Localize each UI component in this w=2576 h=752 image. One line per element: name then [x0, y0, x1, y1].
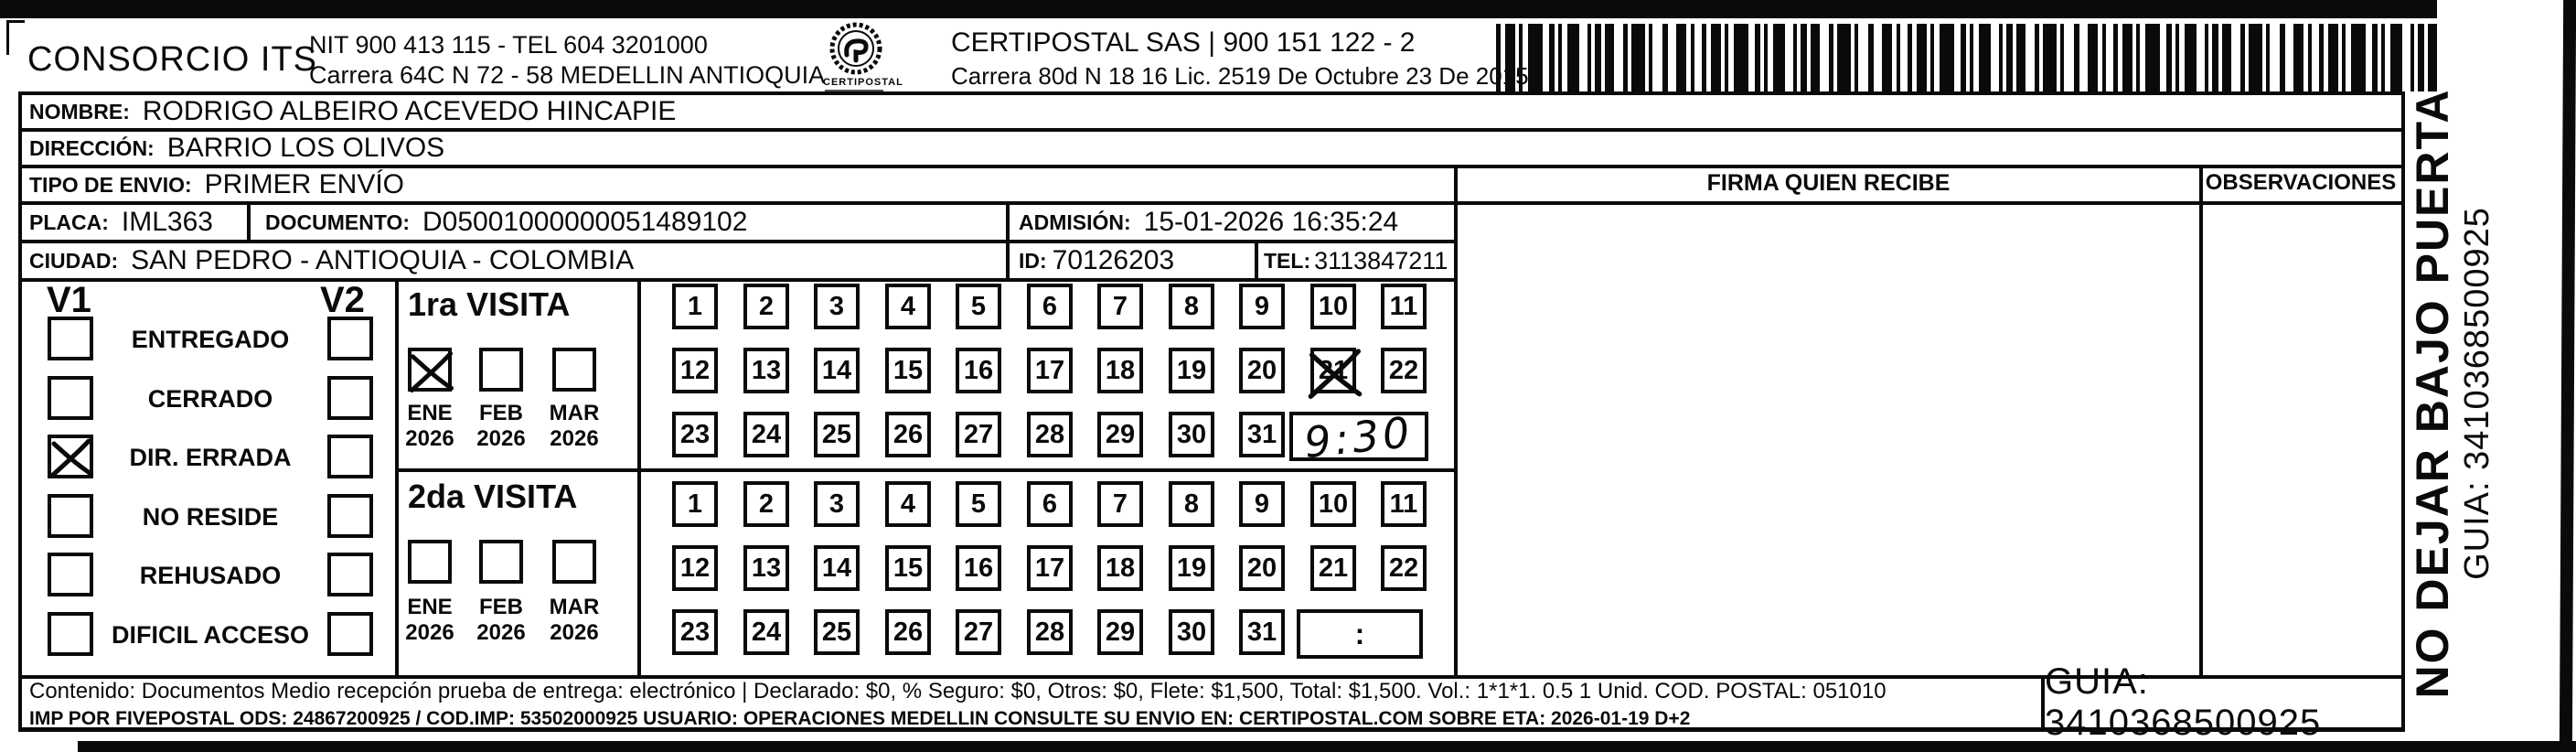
first-visit-title: 1ra VISITA [408, 285, 570, 324]
day-box: 26 [885, 609, 931, 655]
month-year-label: 2026 [463, 620, 540, 646]
firma-header: FIRMA QUIEN RECIBE [1458, 167, 2199, 199]
admision-value: 15-01-2026 16:35:24 [1144, 207, 1399, 238]
side-note-warning: NO DEJAR BAJO PUERTA [2408, 89, 2457, 699]
day-box: 7 [1097, 284, 1143, 329]
day-box: 21 [1310, 348, 1356, 393]
month-label: MAR [536, 595, 613, 620]
day-box: 25 [814, 412, 860, 457]
day-box: 30 [1169, 609, 1214, 655]
placa-label: PLACA: [29, 210, 109, 235]
month-checkbox [552, 348, 596, 392]
firma-signature-area [1458, 205, 2199, 675]
day-box: 4 [885, 284, 931, 329]
month-checkbox [408, 540, 452, 584]
day-box: 12 [672, 348, 718, 393]
scan-top-bar [0, 0, 2437, 18]
nombre-value: RODRIGO ALBEIRO ACEVEDO HINCAPIE [143, 96, 676, 127]
day-box: 23 [672, 609, 718, 655]
second-visit-time-value: : [1355, 618, 1365, 651]
day-box: 3 [814, 284, 860, 329]
visits-panel: 1ra VISITA 2da VISITA ENE2026FEB2026MAR2… [395, 278, 637, 675]
day-box: 5 [956, 481, 1001, 527]
day-box: 28 [1027, 412, 1073, 457]
day-box: 27 [956, 412, 1001, 457]
second-visit-time-box: : [1297, 609, 1423, 659]
documento-label: DOCUMENTO: [265, 210, 410, 235]
day-box: 22 [1381, 348, 1427, 393]
day-box: 20 [1239, 545, 1285, 591]
tel-label: TEL: [1264, 249, 1310, 274]
day-box: 24 [743, 609, 789, 655]
day-box: 5 [956, 284, 1001, 329]
day-box: 19 [1169, 545, 1214, 591]
status-option-label: NO RESIDE [18, 503, 402, 532]
day-box: 11 [1381, 481, 1427, 527]
month-checkbox [479, 540, 523, 584]
footer-imp-line: IMP POR FIVEPOSTAL ODS: 24867200925 / CO… [29, 708, 1887, 730]
month-label: FEB [463, 595, 540, 620]
scan-right-edge [2560, 0, 2576, 752]
day-box: 28 [1027, 609, 1073, 655]
day-box: 15 [885, 348, 931, 393]
day-box: 7 [1097, 481, 1143, 527]
day-box: 4 [885, 481, 931, 527]
scan-corner-mark [6, 20, 25, 23]
footer-guia-number: GUIA: 3410368500925 [2045, 677, 2401, 728]
tipo-envio-label: TIPO DE ENVIO: [29, 173, 192, 198]
tipo-envio-value: PRIMER ENVÍO [205, 169, 404, 200]
day-box: 30 [1169, 412, 1214, 457]
divider [247, 201, 251, 243]
day-box: 1 [672, 481, 718, 527]
month-checkbox [479, 348, 523, 392]
day-box: 14 [814, 348, 860, 393]
postal-delivery-form: CONSORCIO ITS NIT 900 413 115 - TEL 604 … [0, 0, 2576, 752]
day-box: 8 [1169, 481, 1214, 527]
v2-column-header: V2 [320, 280, 365, 321]
day-box: 18 [1097, 348, 1143, 393]
month-checkbox [408, 348, 452, 392]
day-box: 10 [1310, 481, 1356, 527]
scan-corner-mark [6, 20, 9, 55]
id-label: ID: [1019, 249, 1047, 274]
documento-value: D05001000000051489102 [422, 207, 747, 238]
day-grid-panel: 9:30 : 123456789101112131415161718192021… [637, 278, 1454, 675]
side-note-guia: GUIA: 3410368500925 [2457, 89, 2497, 699]
day-box: 6 [1027, 481, 1073, 527]
month-label: FEB [463, 401, 540, 426]
day-box: 25 [814, 609, 860, 655]
month-label: ENE [391, 401, 468, 426]
day-box: 2 [743, 481, 789, 527]
day-box: 13 [743, 348, 789, 393]
day-box: 29 [1097, 412, 1143, 457]
logo-caption: CERTIPOSTAL [823, 77, 903, 88]
footer-content-line: Contenido: Documentos Medio recepción pr… [29, 679, 1887, 704]
carrier-address-line: Carrera 80d N 18 16 Lic. 2519 De Octubre… [951, 62, 1529, 91]
observaciones-header: OBSERVACIONES [2199, 167, 2402, 199]
month-year-label: 2026 [536, 426, 613, 452]
day-box: 26 [885, 412, 931, 457]
status-option-label: DIR. ERRADA [18, 444, 402, 472]
ciudad-value: SAN PEDRO - ANTIOQUIA - COLOMBIA [131, 245, 634, 276]
day-box: 12 [672, 545, 718, 591]
day-box: 29 [1097, 609, 1143, 655]
admision-label: ADMISIÓN: [1019, 210, 1131, 235]
day-box: 27 [956, 609, 1001, 655]
day-box: 31 [1239, 412, 1285, 457]
day-box: 9 [1239, 284, 1285, 329]
day-box: 8 [1169, 284, 1214, 329]
day-box: 6 [1027, 284, 1073, 329]
divider [1255, 240, 1258, 282]
month-label: ENE [391, 595, 468, 620]
day-box: 11 [1381, 284, 1427, 329]
month-label: MAR [536, 401, 613, 426]
certipostal-logo-icon: CERTIPOSTAL [823, 20, 889, 90]
handwritten-x-icon [408, 348, 455, 395]
nombre-label: NOMBRE: [29, 100, 130, 124]
status-option-label: REHUSADO [18, 562, 402, 590]
day-box: 9 [1239, 481, 1285, 527]
day-box: 20 [1239, 348, 1285, 393]
day-box: 1 [672, 284, 718, 329]
direccion-value: BARRIO LOS OLIVOS [167, 133, 444, 164]
day-box: 15 [885, 545, 931, 591]
second-visit-title: 2da VISITA [408, 478, 577, 516]
day-box: 10 [1310, 284, 1356, 329]
carrier-name-line: CERTIPOSTAL SAS | 900 151 122 - 2 [951, 27, 1529, 59]
placa-value: IML363 [122, 207, 213, 238]
first-visit-time-box: 9:30 [1289, 412, 1428, 461]
tel-value: 3113847211 [1314, 247, 1448, 275]
day-box: 16 [956, 348, 1001, 393]
day-box: 23 [672, 412, 718, 457]
side-note: NO DEJAR BAJO PUERTA GUIA: 3410368500925 [2408, 89, 2497, 699]
month-year-label: 2026 [463, 426, 540, 452]
day-box: 31 [1239, 609, 1285, 655]
sender-address-line: Carrera 64C N 72 - 58 MEDELLIN ANTIOQUIA [309, 60, 825, 91]
status-panel: V1 V2 ENTREGADOCERRADODIR. ERRADANO RESI… [18, 278, 395, 675]
day-box: 2 [743, 284, 789, 329]
month-year-label: 2026 [391, 426, 468, 452]
month-checkbox [552, 540, 596, 584]
status-option-label: CERRADO [18, 385, 402, 414]
barcode [1491, 22, 2442, 93]
day-box: 22 [1381, 545, 1427, 591]
sender-company-name: CONSORCIO ITS [27, 40, 317, 80]
direccion-label: DIRECCIÓN: [29, 136, 155, 161]
day-box: 3 [814, 481, 860, 527]
v1-column-header: V1 [47, 280, 91, 321]
day-box: 17 [1027, 348, 1073, 393]
status-option-label: ENTREGADO [18, 326, 402, 354]
day-box: 17 [1027, 545, 1073, 591]
day-box: 19 [1169, 348, 1214, 393]
month-year-label: 2026 [536, 620, 613, 646]
id-value: 70126203 [1053, 245, 1174, 276]
day-box: 21 [1310, 545, 1356, 591]
day-box: 14 [814, 545, 860, 591]
observaciones-area [2203, 205, 2401, 675]
day-box: 18 [1097, 545, 1143, 591]
first-visit-time-value: 9:30 [1302, 407, 1416, 467]
divider [1006, 201, 1010, 282]
status-option-label: DIFICIL ACCESO [18, 621, 402, 650]
day-box: 13 [743, 545, 789, 591]
month-year-label: 2026 [391, 620, 468, 646]
day-box: 24 [743, 412, 789, 457]
day-box: 16 [956, 545, 1001, 591]
ciudad-label: CIUDAD: [29, 249, 118, 274]
handwritten-x-icon [1306, 344, 1364, 403]
sender-nit-line: NIT 900 413 115 - TEL 604 3201000 [309, 30, 825, 60]
